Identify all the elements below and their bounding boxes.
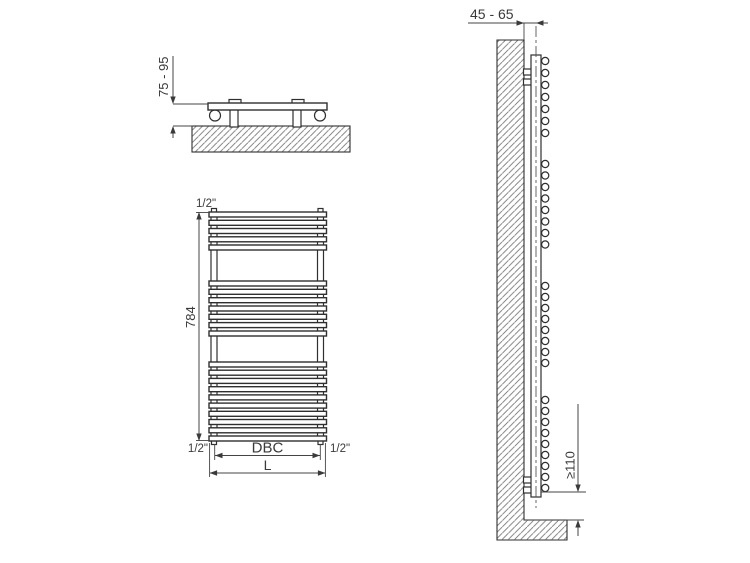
bar-end-circle — [542, 195, 549, 202]
bar-end-circle — [542, 229, 549, 236]
bar-end-circle — [542, 326, 549, 333]
radiator-bar — [209, 403, 327, 408]
radiator-bar — [209, 306, 327, 311]
drawing-svg: 75 - 95 784 1/2" DBC 1/2" 1/2" — [0, 0, 750, 563]
wall-depth-label: 45 - 65 — [470, 6, 514, 22]
arrow-down-icon — [196, 434, 201, 442]
bar-end-circle — [542, 396, 549, 403]
arrow-down-icon — [575, 485, 580, 493]
top-connection-label: 1/2" — [196, 198, 216, 210]
bar-end-circle — [542, 304, 549, 311]
bracket-right — [293, 109, 301, 127]
bar-end-circle — [542, 407, 549, 414]
bar-end-circle — [542, 241, 549, 248]
arrow-left-icon — [215, 453, 223, 458]
radiator-bar — [209, 378, 327, 383]
arrow-left-icon — [536, 20, 544, 25]
radiator-bar — [209, 229, 327, 234]
overall-width-label: L — [264, 457, 272, 473]
bracket-top-2 — [524, 79, 532, 85]
front-view: 784 1/2" DBC 1/2" 1/2" L — [183, 198, 350, 477]
radiator-bar — [209, 370, 327, 375]
bar-end-circle — [542, 451, 549, 458]
bar-end-circle — [542, 129, 549, 136]
bar-end-circle — [542, 429, 549, 436]
bar-end-circle — [542, 81, 549, 88]
bar-end-circle — [542, 218, 549, 225]
radiator-bar-top-view — [208, 103, 327, 110]
bar-end-circle — [542, 473, 549, 480]
bar-end-circle — [542, 160, 549, 167]
top-view: 75 - 95 — [156, 56, 350, 152]
bar-end-circle — [542, 315, 549, 322]
front-view-bars — [209, 212, 327, 441]
radiator-bar — [209, 420, 327, 425]
radiator-technical-drawing: 75 - 95 784 1/2" DBC 1/2" 1/2" — [0, 0, 750, 563]
bar-end-circle — [542, 206, 549, 213]
arrow-right-icon — [313, 453, 321, 458]
wall-distance-label: 75 - 95 — [156, 57, 171, 97]
radiator-bar — [209, 395, 327, 400]
arrow-up-icon — [170, 126, 175, 134]
arrow-up-icon — [575, 520, 580, 528]
radiator-bar — [209, 237, 327, 242]
bracket-bottom-1 — [524, 477, 532, 483]
bracket-top-1 — [524, 69, 532, 75]
collector-end-left — [210, 110, 221, 121]
arrow-down-icon — [170, 97, 175, 105]
side-view: 45 - 65 ≥110 — [468, 6, 586, 540]
bar-end-circle — [542, 440, 549, 447]
floor-clearance-label: ≥110 — [563, 451, 578, 479]
bar-end-circle — [542, 93, 549, 100]
radiator-bar — [209, 331, 327, 336]
bar-end-circle — [542, 359, 549, 366]
bottom-right-connection-label: 1/2" — [330, 443, 350, 455]
radiator-bar — [209, 289, 327, 294]
bar-end-circle — [542, 117, 549, 124]
bar-end-circle — [542, 348, 549, 355]
radiator-bar — [209, 387, 327, 392]
centers-distance-label: DBC — [252, 440, 284, 457]
radiator-bar — [209, 323, 327, 328]
bottom-left-connection-label: 1/2" — [188, 443, 208, 455]
bar-end-circle — [542, 293, 549, 300]
height-label: 784 — [183, 306, 198, 328]
bar-end-circle — [542, 418, 549, 425]
bar-end-circle — [542, 172, 549, 179]
radiator-bar — [209, 220, 327, 225]
radiator-bar — [209, 281, 327, 286]
radiator-bar — [209, 314, 327, 319]
radiator-bar — [209, 362, 327, 367]
bar-end-circle — [542, 57, 549, 64]
wall-section-top-view — [192, 126, 350, 152]
side-view-bar-ends — [542, 57, 549, 491]
radiator-bar — [209, 428, 327, 433]
bar-end-circle — [542, 105, 549, 112]
collector-end-right — [315, 110, 326, 121]
radiator-bar — [209, 411, 327, 416]
bar-end-circle — [542, 484, 549, 491]
radiator-bar — [209, 298, 327, 303]
bar-end-circle — [542, 183, 549, 190]
radiator-bar — [209, 245, 327, 250]
arrow-up-icon — [196, 212, 201, 220]
arrow-right-icon — [517, 20, 525, 25]
arrow-right-icon — [318, 470, 326, 475]
radiator-bar — [209, 212, 327, 217]
bracket-bottom-2 — [524, 487, 532, 493]
bar-end-circle — [542, 462, 549, 469]
bar-end-circle — [542, 69, 549, 76]
bar-end-circle — [542, 282, 549, 289]
bar-end-circle — [542, 337, 549, 344]
bracket-left — [230, 109, 238, 127]
arrow-left-icon — [210, 470, 218, 475]
